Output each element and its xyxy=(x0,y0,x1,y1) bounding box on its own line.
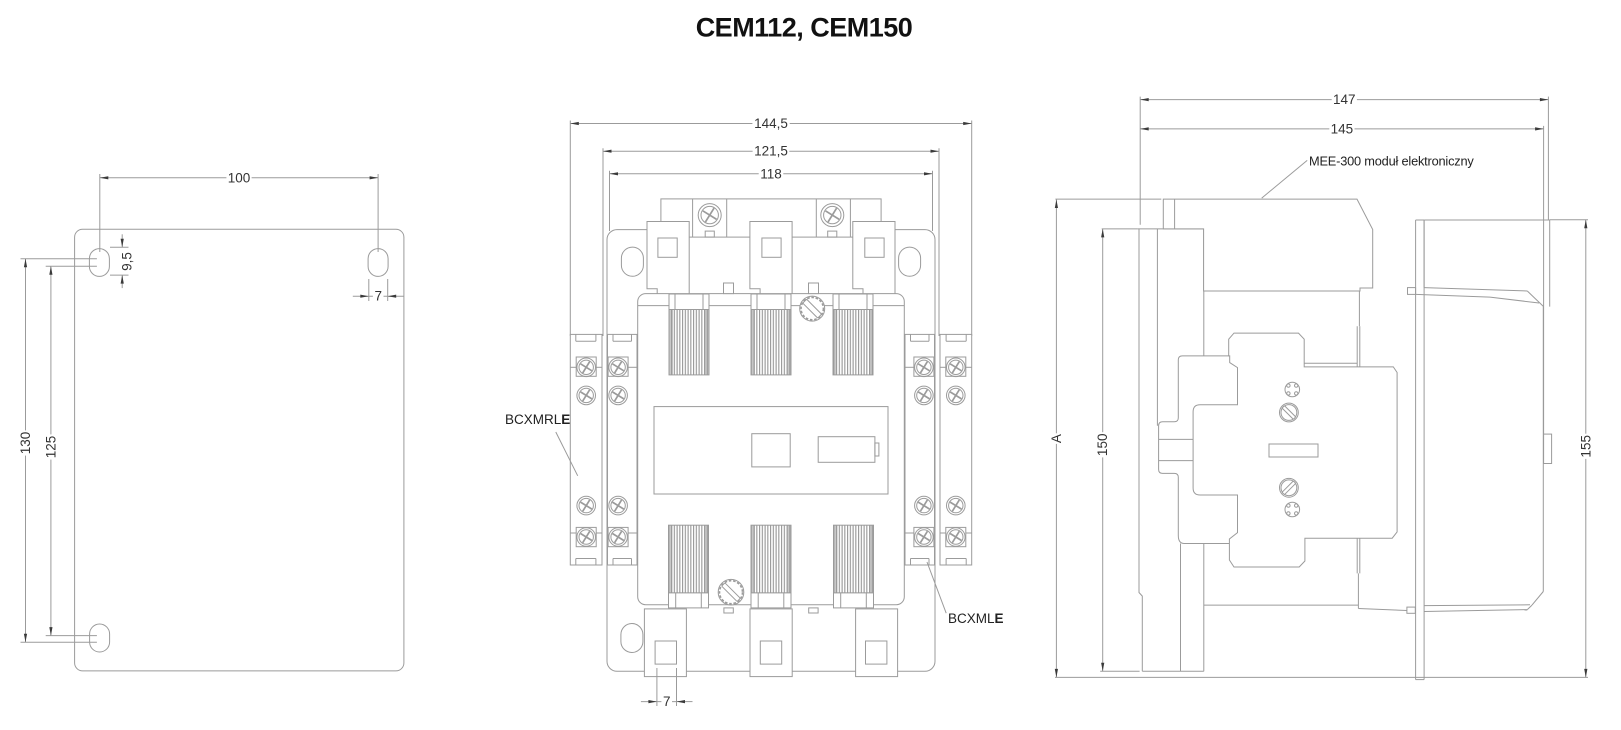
svg-text:CEM112, CEM150: CEM112, CEM150 xyxy=(696,13,913,43)
svg-text:150: 150 xyxy=(1095,434,1110,457)
svg-text:155: 155 xyxy=(1578,435,1593,458)
svg-text:130: 130 xyxy=(18,432,33,455)
svg-text:7: 7 xyxy=(663,694,671,709)
svg-text:MEE-300 moduł elektroniczny: MEE-300 moduł elektroniczny xyxy=(1309,154,1474,169)
svg-text:100: 100 xyxy=(228,170,251,185)
svg-text:BCXMLE: BCXMLE xyxy=(948,611,1004,626)
svg-text:121,5: 121,5 xyxy=(754,144,788,159)
svg-text:145: 145 xyxy=(1331,121,1354,136)
svg-text:7: 7 xyxy=(374,289,382,304)
svg-text:147: 147 xyxy=(1333,92,1356,107)
svg-text:A: A xyxy=(1049,434,1064,443)
svg-text:125: 125 xyxy=(43,436,58,459)
svg-text:118: 118 xyxy=(760,166,782,181)
svg-text:BCXMRLE: BCXMRLE xyxy=(505,412,570,427)
svg-text:144,5: 144,5 xyxy=(754,116,788,131)
svg-text:9,5: 9,5 xyxy=(120,252,135,271)
